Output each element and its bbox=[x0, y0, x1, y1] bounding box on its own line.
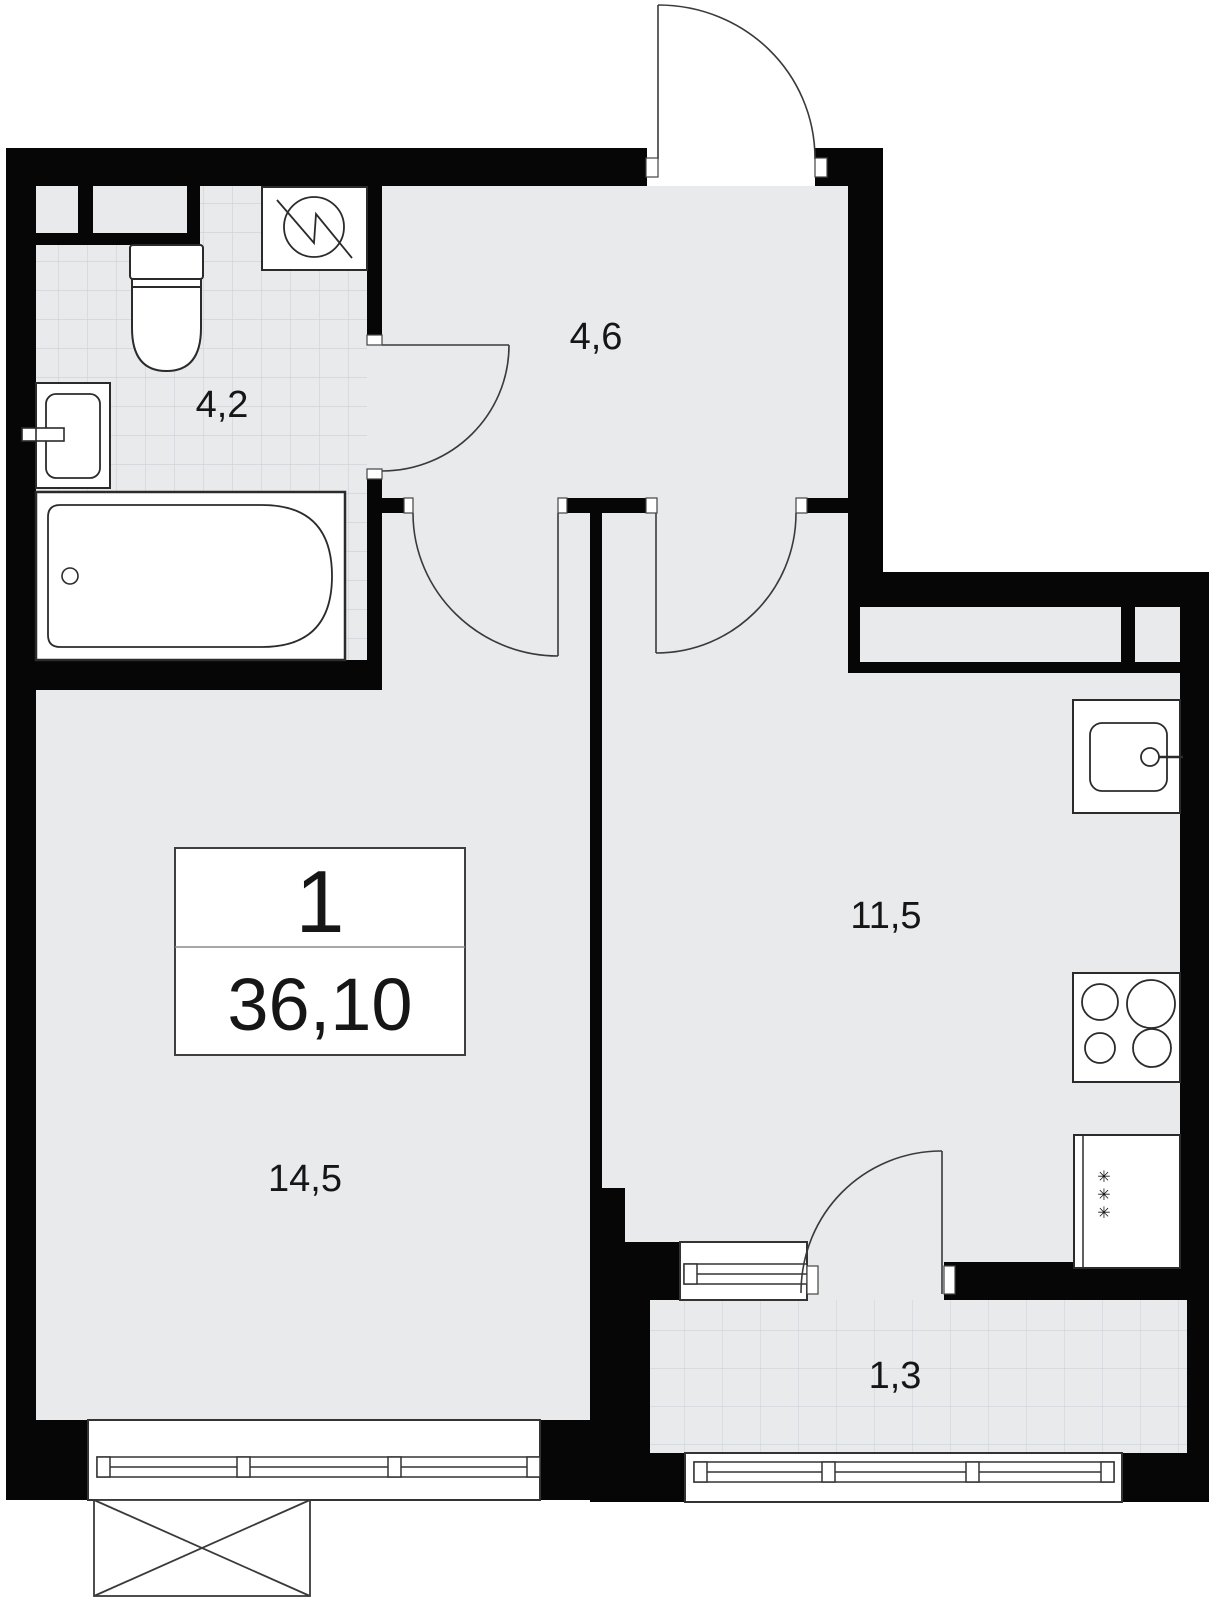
wall-hall-bottom-2 bbox=[566, 498, 646, 513]
kitchen-sink bbox=[1073, 700, 1183, 813]
stove-top bbox=[1073, 973, 1180, 1082]
room-label-hallway: 4,6 bbox=[570, 316, 623, 358]
wall-hall-bottom-3 bbox=[807, 498, 850, 513]
wall-hall-bottom-1 bbox=[380, 498, 405, 513]
wall-living-window-right bbox=[540, 1420, 590, 1500]
living-room-door-opening bbox=[413, 498, 558, 513]
wall-bathroom-right-upper bbox=[367, 186, 382, 336]
bathroom-sink bbox=[22, 383, 110, 488]
rooms-count-label: 1 bbox=[296, 852, 345, 951]
window-balcony bbox=[685, 1453, 1122, 1502]
window-mullion bbox=[527, 1457, 540, 1477]
door-jamb bbox=[944, 1266, 955, 1294]
stove bbox=[1073, 973, 1180, 1082]
wall-balcony-corner-right bbox=[1122, 1453, 1209, 1502]
info-box: 1 36,10 bbox=[175, 848, 465, 1055]
toilet-tank bbox=[130, 245, 203, 279]
fridge-snowflake-icon: ✳ bbox=[1097, 1187, 1110, 1204]
toilet-seam bbox=[132, 279, 201, 287]
total-area-label: 36,10 bbox=[227, 963, 412, 1046]
wall-central-step bbox=[590, 1188, 625, 1242]
entrance-door-arc bbox=[658, 5, 815, 159]
wall-bathroom-right-lower bbox=[367, 478, 382, 660]
wall-left bbox=[6, 148, 36, 1420]
bathroom-door-opening bbox=[367, 344, 382, 470]
window-kitchen-balcony bbox=[680, 1242, 807, 1300]
bathtub-rim bbox=[36, 492, 345, 660]
door-jamb bbox=[815, 158, 827, 177]
floor-plan-page: ✳ ✳ ✳ bbox=[0, 0, 1209, 1600]
wall-bathroom-bottom bbox=[6, 660, 382, 690]
door-jamb bbox=[404, 498, 413, 513]
room-label-bathroom: 4,2 bbox=[196, 384, 249, 426]
window-mullion bbox=[822, 1462, 835, 1482]
duct-cell-2 bbox=[1135, 607, 1180, 662]
wall-kitchen-balcony-piece bbox=[648, 1242, 680, 1300]
wall-shaft-bottom bbox=[36, 233, 200, 245]
bathtub bbox=[36, 492, 345, 660]
sink-faucet bbox=[22, 428, 64, 441]
window-mullion bbox=[684, 1264, 697, 1284]
door-jamb bbox=[646, 158, 658, 177]
wall-hall-right bbox=[848, 186, 883, 605]
window-mullion bbox=[966, 1462, 979, 1482]
wall-balcony-corner-left bbox=[650, 1453, 685, 1502]
entrance-opening bbox=[658, 148, 815, 186]
fridge-snowflake-icon: ✳ bbox=[1097, 1169, 1110, 1186]
kitchen-door-opening bbox=[657, 498, 796, 513]
door-jamb bbox=[796, 498, 807, 513]
room-label-living-room: 14,5 bbox=[268, 1158, 342, 1200]
window-mullion bbox=[694, 1462, 707, 1482]
window-mullion bbox=[1101, 1462, 1114, 1482]
window-mullion bbox=[388, 1457, 401, 1477]
door-jamb bbox=[367, 335, 382, 345]
wall-shaft-divider bbox=[78, 186, 93, 233]
wall-balcony-right bbox=[1187, 1300, 1209, 1453]
door-jamb bbox=[807, 1266, 818, 1294]
floor-plan: ✳ ✳ ✳ bbox=[0, 0, 1209, 1600]
entrance-door bbox=[658, 5, 815, 159]
duct-cell-1 bbox=[860, 607, 1121, 662]
toilet bbox=[130, 245, 203, 371]
washing-machine bbox=[262, 187, 367, 270]
window-mullion bbox=[237, 1457, 250, 1477]
wall-central-bottom bbox=[590, 1242, 650, 1502]
door-jamb bbox=[367, 469, 382, 479]
room-label-kitchen: 11,5 bbox=[850, 895, 921, 937]
wall-corner-bottom-left bbox=[6, 1420, 88, 1500]
wall-right bbox=[1180, 572, 1209, 1300]
window-living-room bbox=[88, 1420, 540, 1500]
wall-top-left bbox=[6, 148, 647, 186]
wall-kitchen-top bbox=[883, 572, 1209, 602]
balcony-door-opening bbox=[807, 1242, 944, 1300]
fridge-box bbox=[1074, 1135, 1180, 1268]
window-mullion bbox=[97, 1457, 110, 1477]
door-jamb bbox=[558, 498, 567, 513]
toilet-bowl bbox=[132, 287, 201, 371]
balcony-outline-box bbox=[94, 1500, 310, 1596]
kitchen-sink-faucet-base bbox=[1141, 748, 1159, 766]
room-label-balcony: 1,3 bbox=[869, 1355, 922, 1397]
fridge: ✳ ✳ ✳ bbox=[1074, 1135, 1180, 1268]
fridge-snowflake-icon: ✳ bbox=[1097, 1205, 1110, 1222]
kitchen-floor-left bbox=[602, 513, 883, 1300]
door-jamb bbox=[646, 498, 657, 513]
wall-central bbox=[590, 513, 602, 1188]
